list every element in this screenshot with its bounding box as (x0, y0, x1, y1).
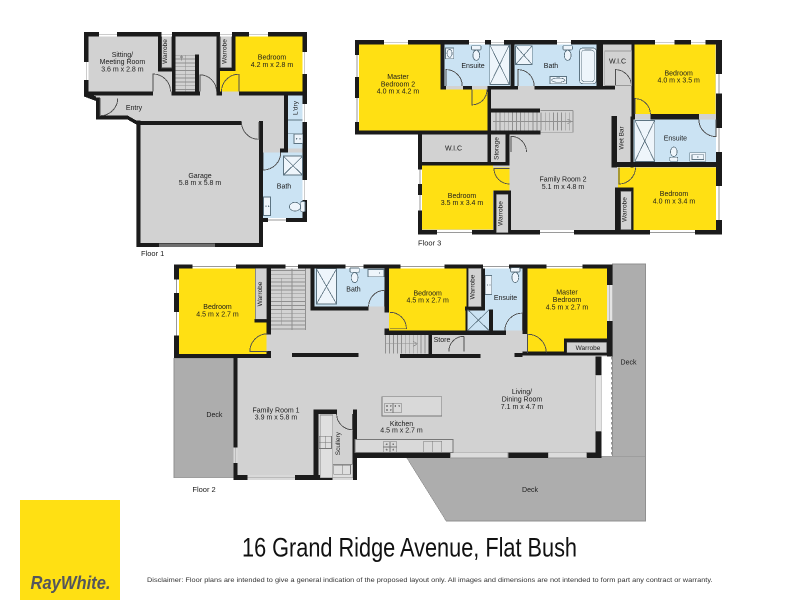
svg-text:Floor 2: Floor 2 (192, 485, 215, 494)
svg-text:Ensuite: Ensuite (461, 63, 484, 70)
svg-text:Family Room 1: Family Room 1 (252, 407, 299, 414)
svg-text:Bedroom: Bedroom (660, 191, 689, 198)
svg-text:4.5 m x 2.7 m: 4.5 m x 2.7 m (196, 312, 239, 319)
svg-text:Warrobe: Warrobe (576, 345, 601, 352)
svg-text:W.I.C: W.I.C (445, 146, 462, 153)
svg-text:Warrobe: Warrobe (221, 39, 228, 64)
svg-text:Garage: Garage (188, 173, 211, 180)
svg-text:7.1 m x 4.7 m: 7.1 m x 4.7 m (501, 404, 544, 411)
svg-text:Bedroom: Bedroom (413, 290, 442, 297)
svg-text:Bedroom: Bedroom (448, 193, 477, 200)
svg-text:4.0 m x 4.2 m: 4.0 m x 4.2 m (377, 88, 420, 95)
svg-text:Deck: Deck (621, 360, 637, 367)
svg-text:Family Room 2: Family Room 2 (539, 177, 586, 184)
svg-text:Store: Store (434, 337, 451, 344)
svg-text:4.5 m x 2.7 m: 4.5 m x 2.7 m (546, 305, 589, 312)
svg-text:Deck: Deck (206, 412, 222, 419)
svg-text:4.0 m x 3.4 m: 4.0 m x 3.4 m (653, 198, 696, 205)
svg-text:Meeting Room: Meeting Room (100, 59, 146, 66)
svg-text:3.5 m x 3.4 m: 3.5 m x 3.4 m (441, 200, 484, 207)
svg-text:5.1 m x 4.8 m: 5.1 m x 4.8 m (542, 184, 585, 191)
svg-text:Warrobe: Warrobe (470, 274, 477, 299)
svg-text:Warrobe: Warrobe (497, 201, 504, 226)
svg-text:Warrobe: Warrobe (162, 39, 169, 64)
svg-text:16 Grand Ridge Avenue, Flat Bu: 16 Grand Ridge Avenue, Flat Bush (242, 533, 577, 563)
svg-text:RayWhite.: RayWhite. (31, 572, 111, 593)
svg-text:3.6 m x 2.8 m: 3.6 m x 2.8 m (101, 67, 144, 74)
svg-text:L'dry: L'dry (292, 100, 299, 115)
svg-text:4.5 m x 2.7 m: 4.5 m x 2.7 m (380, 428, 423, 435)
svg-text:Living/: Living/ (512, 389, 532, 396)
svg-text:Scullery: Scullery (335, 431, 342, 455)
svg-text:Bath: Bath (346, 287, 361, 294)
svg-text:Bedroom: Bedroom (664, 70, 693, 77)
svg-text:Ensuite: Ensuite (494, 295, 517, 302)
svg-text:Bedroom: Bedroom (203, 304, 232, 311)
svg-text:3.9 m x 5.8 m: 3.9 m x 5.8 m (255, 415, 298, 422)
svg-text:Disclaimer: Floor plans are in: Disclaimer: Floor plans are intended to … (147, 577, 713, 584)
svg-text:Warrobe: Warrobe (257, 281, 264, 306)
svg-text:Dining Room: Dining Room (502, 397, 543, 404)
svg-text:Master: Master (556, 290, 578, 297)
svg-text:W.I.C: W.I.C (609, 59, 626, 66)
svg-text:4.5 m x 2.7 m: 4.5 m x 2.7 m (406, 298, 449, 305)
svg-text:Entry: Entry (126, 105, 143, 112)
svg-text:Bedroom: Bedroom (553, 297, 582, 304)
svg-text:Bath: Bath (277, 184, 292, 191)
svg-text:Warrobe: Warrobe (621, 197, 628, 222)
svg-text:Storage: Storage (494, 137, 501, 160)
svg-text:Deck: Deck (522, 487, 538, 494)
svg-text:4.0 m x 3.5 m: 4.0 m x 3.5 m (657, 78, 700, 85)
svg-text:5.8 m x 5.8 m: 5.8 m x 5.8 m (179, 180, 222, 187)
svg-text:Floor 3: Floor 3 (418, 239, 441, 248)
svg-text:Ensuite: Ensuite (664, 136, 687, 143)
svg-text:Bath: Bath (544, 63, 559, 70)
svg-text:Bedroom: Bedroom (258, 55, 287, 62)
svg-text:Wet Bar: Wet Bar (619, 125, 626, 149)
svg-text:Master: Master (387, 74, 409, 81)
svg-text:4.2 m x 2.8 m: 4.2 m x 2.8 m (251, 62, 294, 69)
svg-text:Sitting/: Sitting/ (112, 52, 133, 59)
svg-text:Floor 1: Floor 1 (141, 249, 164, 258)
